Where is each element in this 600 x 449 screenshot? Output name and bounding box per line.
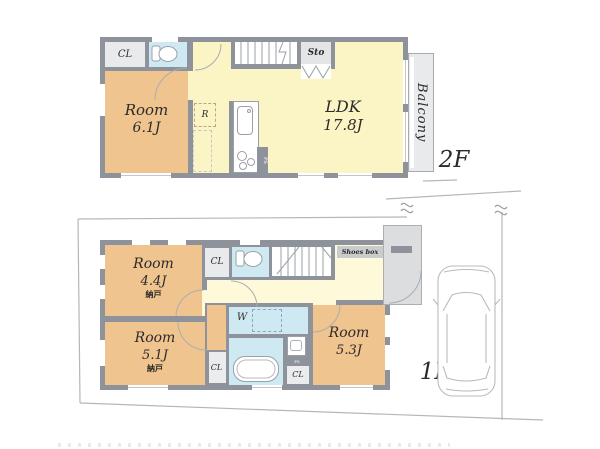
floorplan-image: CL Sto R PS Balcony LDK 17.8J Room 6.1J …	[0, 0, 600, 449]
closet-bath-label: CL	[287, 366, 309, 384]
wall-segment	[331, 42, 335, 69]
room53-name-label: Room	[313, 326, 385, 343]
window	[132, 240, 150, 245]
pipe-space-2f: PS	[257, 147, 268, 173]
shoes-box-label: Shoes box	[337, 246, 383, 258]
ldk-name-label: LDK	[303, 98, 383, 116]
refrigerator-label: R	[194, 103, 216, 127]
room51-note-label: 納戸	[105, 365, 205, 376]
window	[403, 112, 408, 162]
kitchen-sink	[237, 106, 253, 135]
window	[121, 173, 171, 178]
window	[298, 173, 324, 178]
room44-note-label: 納戸	[105, 291, 202, 302]
window	[340, 385, 373, 390]
room44-name-label: Room	[105, 257, 202, 274]
storage-sto-label: Sto	[301, 42, 331, 64]
room61-size-label: 6.1J	[105, 121, 188, 137]
floor1-label: 1F	[410, 360, 460, 390]
pipe-space-1f: PS	[292, 358, 302, 365]
balcony-label: Balcony	[414, 83, 428, 142]
wall-segment	[331, 247, 335, 280]
boundary-break-marks	[401, 203, 507, 214]
window	[403, 60, 408, 104]
toilet-room-2f	[149, 42, 187, 67]
toilet-room-1f	[232, 247, 269, 277]
wall-segment	[202, 280, 207, 290]
wall-segment	[105, 67, 193, 71]
wall-segment	[205, 350, 209, 385]
washing-machine-space	[252, 309, 282, 332]
window	[385, 345, 390, 370]
window	[385, 315, 390, 337]
window	[152, 37, 178, 42]
ldk-size-label: 17.8J	[303, 117, 383, 133]
room61-name-label: Room	[105, 102, 188, 120]
closet-2f-label: CL	[105, 42, 145, 67]
bathtub	[233, 356, 279, 382]
closet-hall-label: CL	[205, 248, 229, 277]
floor2-label: 2F	[428, 148, 480, 178]
entrance-step	[391, 246, 412, 253]
window	[338, 173, 372, 178]
cropped-disclaimer-text	[58, 443, 450, 447]
wall-segment	[231, 64, 301, 69]
wall-segment	[336, 300, 385, 305]
window	[240, 240, 260, 245]
room53-size-label: 5.3J	[313, 344, 385, 359]
sto-folding-door	[301, 64, 331, 79]
washbasin-bowl	[290, 340, 302, 351]
washer-label: W	[233, 312, 251, 328]
window	[128, 385, 168, 390]
window	[168, 240, 186, 245]
closet-side-label: CL	[207, 352, 226, 383]
staircase-2f	[235, 42, 297, 64]
room51-name-label: Room	[105, 331, 205, 348]
room44-size-label: 4.4J	[105, 275, 202, 290]
window	[252, 385, 282, 390]
storage-nook	[207, 305, 226, 350]
cupboard-space	[193, 130, 212, 172]
staircase-1f	[272, 247, 331, 276]
room51-size-label: 5.1J	[105, 349, 205, 364]
entrance-porch	[383, 225, 422, 305]
